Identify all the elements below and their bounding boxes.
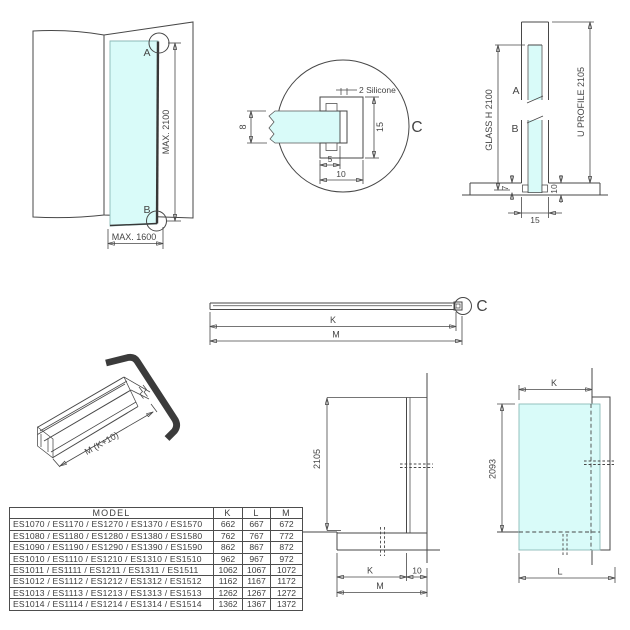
cell-m: 972 (271, 553, 303, 564)
extension-tick (151, 404, 157, 412)
cell-l: 767 (243, 530, 271, 541)
cell-l: 1267 (243, 587, 271, 598)
cell-k: 1262 (214, 587, 243, 598)
glass-panel (519, 404, 600, 550)
max-height-label: MAX. 2100 (161, 110, 171, 155)
dim-k-label: K (367, 566, 373, 576)
gasket-left (523, 185, 529, 192)
profile-3d-end-face (38, 427, 54, 458)
detail-c-callout: C (476, 298, 487, 315)
profile-depth-label: 10 (336, 169, 346, 179)
cell-l: 1067 (243, 565, 271, 576)
table-row: ES1090 / ES1190 / ES1290 / ES1390 / ES15… (10, 542, 303, 553)
silicone-joint (340, 111, 347, 143)
header-m: M (271, 508, 303, 519)
dim-m-label: M (376, 581, 384, 591)
table-row: ES1011 / ES1111 / ES1211 / ES1311 / ES15… (10, 565, 303, 576)
gasket-right (542, 185, 548, 192)
dim-k-label: K (330, 315, 336, 325)
glass-section (269, 111, 340, 143)
cell-k: 1362 (214, 599, 243, 610)
floor-hatch (337, 550, 440, 567)
gasket-groove-top (326, 104, 337, 112)
diagram-profile-3d: M (K+10) (38, 357, 177, 467)
table-row: ES1013 / ES1113 / ES1213 / ES1313 / ES15… (10, 587, 303, 598)
cell-k: 1062 (214, 565, 243, 576)
glass-fill-upper (529, 46, 542, 101)
cell-m: 1172 (271, 576, 303, 587)
table-header-row: MODEL K L M (10, 508, 303, 519)
glass-edge-profile (157, 42, 158, 224)
cell-model: ES1080 / ES1180 / ES1280 / ES1380 / ES15… (10, 530, 214, 541)
cell-k: 1162 (214, 576, 243, 587)
gasket-groove-bottom (326, 143, 337, 151)
profile-height-label: 15 (375, 122, 385, 132)
table-row: ES1070 / ES1170 / ES1270 / ES1370 / ES15… (10, 519, 303, 530)
point-a-label: A (512, 85, 519, 97)
glass-height-label: GLASS H 2100 (484, 89, 494, 151)
cell-model: ES1090 / ES1190 / ES1290 / ES1390 / ES15… (10, 542, 214, 553)
cell-k: 862 (214, 542, 243, 553)
cell-k: 962 (214, 553, 243, 564)
header-k: K (214, 508, 243, 519)
diagram-front-elevation: K 2093 L (488, 368, 629, 583)
cell-l: 667 (243, 519, 271, 530)
table-row: ES1010 / ES1110 / ES1210 / ES1310 / ES15… (10, 553, 303, 564)
diagram-vertical-section: A B GLASS H 2100 U PROFILE 2105 7 10 15 (462, 22, 608, 225)
diagram-detail-c: 2 Silicone 8 15 5 10 C (238, 60, 423, 192)
cell-m: 1272 (271, 587, 303, 598)
cell-model: ES1010 / ES1110 / ES1210 / ES1310 / ES15… (10, 553, 214, 564)
break-mark (143, 385, 148, 397)
cell-l: 1367 (243, 599, 271, 610)
cell-m: 1372 (271, 599, 303, 610)
cell-model: ES1012 / ES1112 / ES1212 / ES1312 / ES15… (10, 576, 214, 587)
diagram-profile-length: C K M (210, 298, 488, 346)
cell-m: 872 (271, 542, 303, 553)
profile-3d-edge (38, 384, 126, 435)
drawing-sheet: A B MAX. 2100 MAX. 1600 2 Silicone 8 15 (0, 0, 630, 630)
detail-c-callout: C (411, 119, 422, 136)
diagram-front-view: A B MAX. 2100 MAX. 1600 (33, 22, 193, 249)
silicone-label: 2 Silicone (359, 85, 396, 95)
cell-l: 867 (243, 542, 271, 553)
cell-model: ES1014 / ES1114 / ES1214 / ES1314 / ES15… (10, 599, 214, 610)
cell-k: 762 (214, 530, 243, 541)
spec-table-body: ES1070 / ES1170 / ES1270 / ES1370 / ES15… (10, 519, 303, 610)
glass-fill-lower (529, 120, 542, 193)
spec-table: MODEL K L M ES1070 / ES1170 / ES1270 / E… (9, 507, 303, 611)
glass-inset-label: 5 (328, 154, 333, 164)
cell-m: 772 (271, 530, 303, 541)
u-profile-label: U PROFILE 2105 (576, 67, 586, 137)
header-model: MODEL (10, 508, 214, 519)
cell-m: 1072 (271, 565, 303, 576)
cell-model: ES1013 / ES1113 / ES1213 / ES1313 / ES15… (10, 587, 214, 598)
table-row: ES1014 / ES1114 / ES1214 / ES1314 / ES15… (10, 599, 303, 610)
height-label: 2105 (312, 449, 322, 469)
dim-m-label: M (332, 330, 340, 340)
break-mark (139, 387, 144, 399)
dim-k-label: K (551, 378, 557, 388)
cell-model: ES1070 / ES1170 / ES1270 / ES1370 / ES15… (10, 519, 214, 530)
cell-l: 1167 (243, 576, 271, 587)
dim-10-label: 10 (549, 184, 559, 194)
header-l: L (243, 508, 271, 519)
dim-7-label: 7 (500, 185, 510, 190)
table-row: ES1080 / ES1180 / ES1280 / ES1380 / ES15… (10, 530, 303, 541)
profile-3d-edge (40, 381, 127, 431)
point-b-label: B (511, 123, 518, 135)
cell-l: 967 (243, 553, 271, 564)
floor-hatch (462, 196, 608, 212)
cell-model: ES1011 / ES1111 / ES1211 / ES1311 / ES15… (10, 565, 214, 576)
glass-thickness-label: 8 (238, 124, 248, 129)
dim-10-label: 10 (412, 566, 422, 576)
spec-table-container: MODEL K L M ES1070 / ES1170 / ES1270 / E… (9, 507, 303, 611)
height-label: 2093 (488, 459, 498, 479)
cell-k: 662 (214, 519, 243, 530)
wall-left-panel (33, 31, 104, 218)
dim-15-label: 15 (530, 215, 540, 225)
diagram-side-section: 2105 K 10 M (302, 373, 440, 597)
table-row: ES1012 / ES1112 / ES1212 / ES1312 / ES15… (10, 576, 303, 587)
point-a-label: A (143, 47, 150, 59)
point-b-label: B (143, 204, 150, 216)
length-label: M (K+10) (83, 430, 120, 457)
cell-m: 672 (271, 519, 303, 530)
glass-panel (110, 41, 158, 226)
dim-l-label: L (557, 567, 562, 577)
wall-hatch (427, 373, 439, 563)
extension-tick (53, 459, 60, 467)
max-width-label: MAX. 1600 (112, 232, 157, 242)
curb-hatch (302, 532, 337, 550)
